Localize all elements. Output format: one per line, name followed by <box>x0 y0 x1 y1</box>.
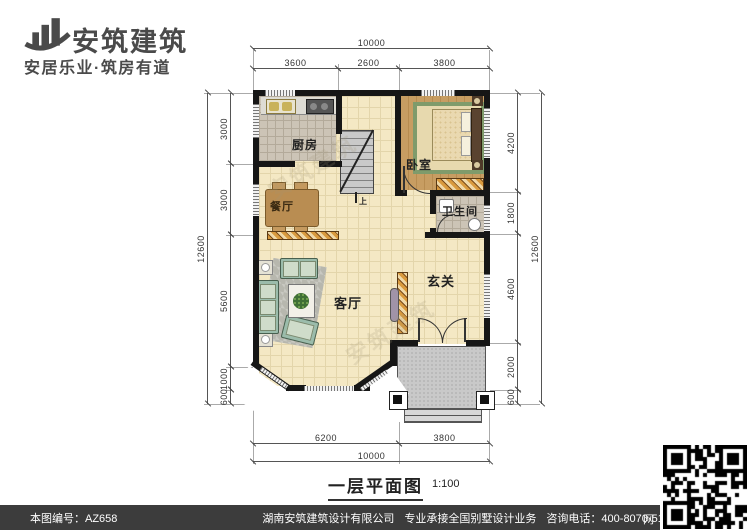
plan-scale: 1:100 <box>432 478 460 490</box>
staircase-arrow <box>355 192 357 203</box>
window-entry-east <box>484 274 490 318</box>
bedroom-door-leaf <box>403 166 405 193</box>
dim-left-total: 12600 <box>207 93 208 404</box>
side-table <box>258 260 273 275</box>
dim-bottom-2: 3800 <box>399 443 490 444</box>
window-dining-west <box>253 184 259 216</box>
room-label-living: 客厅 <box>334 293 362 312</box>
staircase <box>340 130 374 194</box>
wall-stair-stub <box>336 90 342 134</box>
window-bay-south <box>304 386 354 391</box>
company-name: 湖南安筑建筑设计有限公司 <box>262 510 394 526</box>
dim-left-4: 1000 <box>230 367 231 390</box>
page: 安筑建筑 安居乐业·筑房有道 安筑建筑 安筑建筑 上 餐厅 <box>0 0 750 530</box>
dim-right-3: 4600 <box>517 234 518 343</box>
porch-steps <box>404 408 482 423</box>
dim-left-2: 3000 <box>230 164 231 235</box>
wall-bedroom-south-b <box>430 190 490 196</box>
footer-bar: 本图编号：AZ658 湖南安筑建筑设计有限公司 专业承接全国别墅设计业务 咨询电… <box>0 505 750 530</box>
coffee-table <box>288 284 315 318</box>
wall-bay-south-a <box>286 385 306 391</box>
window-kitchen-west <box>253 104 259 138</box>
window-kitchen-north <box>265 90 295 96</box>
porch-column-left <box>389 391 408 410</box>
service-line: 专业承接全国别墅设计业务 <box>404 510 536 526</box>
qr-code <box>663 445 747 529</box>
dim-right-2: 1800 <box>517 192 518 234</box>
bed-headboard <box>471 108 482 162</box>
plan-title: 一层平面图 <box>328 472 423 501</box>
dim-left-1: 3000 <box>230 93 231 164</box>
dim-right-1: 4200 <box>517 93 518 192</box>
wall-bath-south <box>425 232 490 238</box>
wall-kitchen-south-b <box>319 161 342 167</box>
dim-right-5: 600 <box>517 390 518 404</box>
window-bathroom-east <box>484 205 490 231</box>
window-bedroom-east <box>484 108 490 158</box>
kitchen-stove <box>306 99 334 114</box>
brand-tagline: 安居乐业·筑房有道 <box>24 54 171 78</box>
dim-right-4: 2000 <box>517 343 518 390</box>
bed-pillow <box>461 112 471 132</box>
ext-line <box>490 93 540 94</box>
nightstand <box>472 160 483 170</box>
side-table <box>258 332 273 347</box>
dim-bottom-total: 10000 <box>253 461 490 462</box>
wall-bedroom-west <box>395 90 401 196</box>
web-label: 网 <box>643 511 654 527</box>
sofa-long <box>257 280 279 334</box>
toilet <box>468 218 481 231</box>
dim-right-total: 12600 <box>541 93 542 404</box>
dim-top-total: 10000 <box>253 48 490 49</box>
sofa-loveseat <box>280 258 318 279</box>
tv-unit <box>390 288 399 322</box>
wall-kitchen-south-a <box>253 161 295 167</box>
stairs-up-label: 上 <box>359 196 368 207</box>
window-bedroom-north <box>421 90 455 96</box>
qr-code-box <box>660 443 750 530</box>
bed-pillow <box>461 136 471 156</box>
room-label-bathroom: 卫生间 <box>442 203 478 219</box>
dim-left-5: 600 <box>230 390 231 404</box>
porch-column-right <box>476 391 495 410</box>
kitchen-sink <box>266 99 296 114</box>
nightstand <box>472 96 483 106</box>
room-label-dining: 餐厅 <box>270 198 294 214</box>
dim-bottom-1: 6200 <box>253 443 399 444</box>
wall-entry-south-b <box>466 340 490 346</box>
drawing-serial: 本图编号：AZ658 <box>30 510 117 526</box>
cabinet-strip <box>267 231 339 240</box>
porch <box>397 346 486 410</box>
room-label-kitchen: 厨房 <box>292 136 318 153</box>
dim-top-1: 3600 <box>253 68 338 69</box>
wall-bath-west-a <box>430 196 436 214</box>
dim-top-2: 2600 <box>338 68 399 69</box>
ext-line <box>204 93 253 94</box>
room-label-entry: 玄关 <box>427 271 455 290</box>
building-bars-icon <box>24 12 74 56</box>
entry-door-leaf-right <box>464 318 466 342</box>
dim-top-3: 3800 <box>399 68 490 69</box>
room-label-bedroom: 卧室 <box>406 156 432 173</box>
dim-left-3: 5600 <box>230 235 231 367</box>
wall-bedroom-south-a <box>395 190 407 196</box>
entry-door-leaf-left <box>418 318 420 342</box>
